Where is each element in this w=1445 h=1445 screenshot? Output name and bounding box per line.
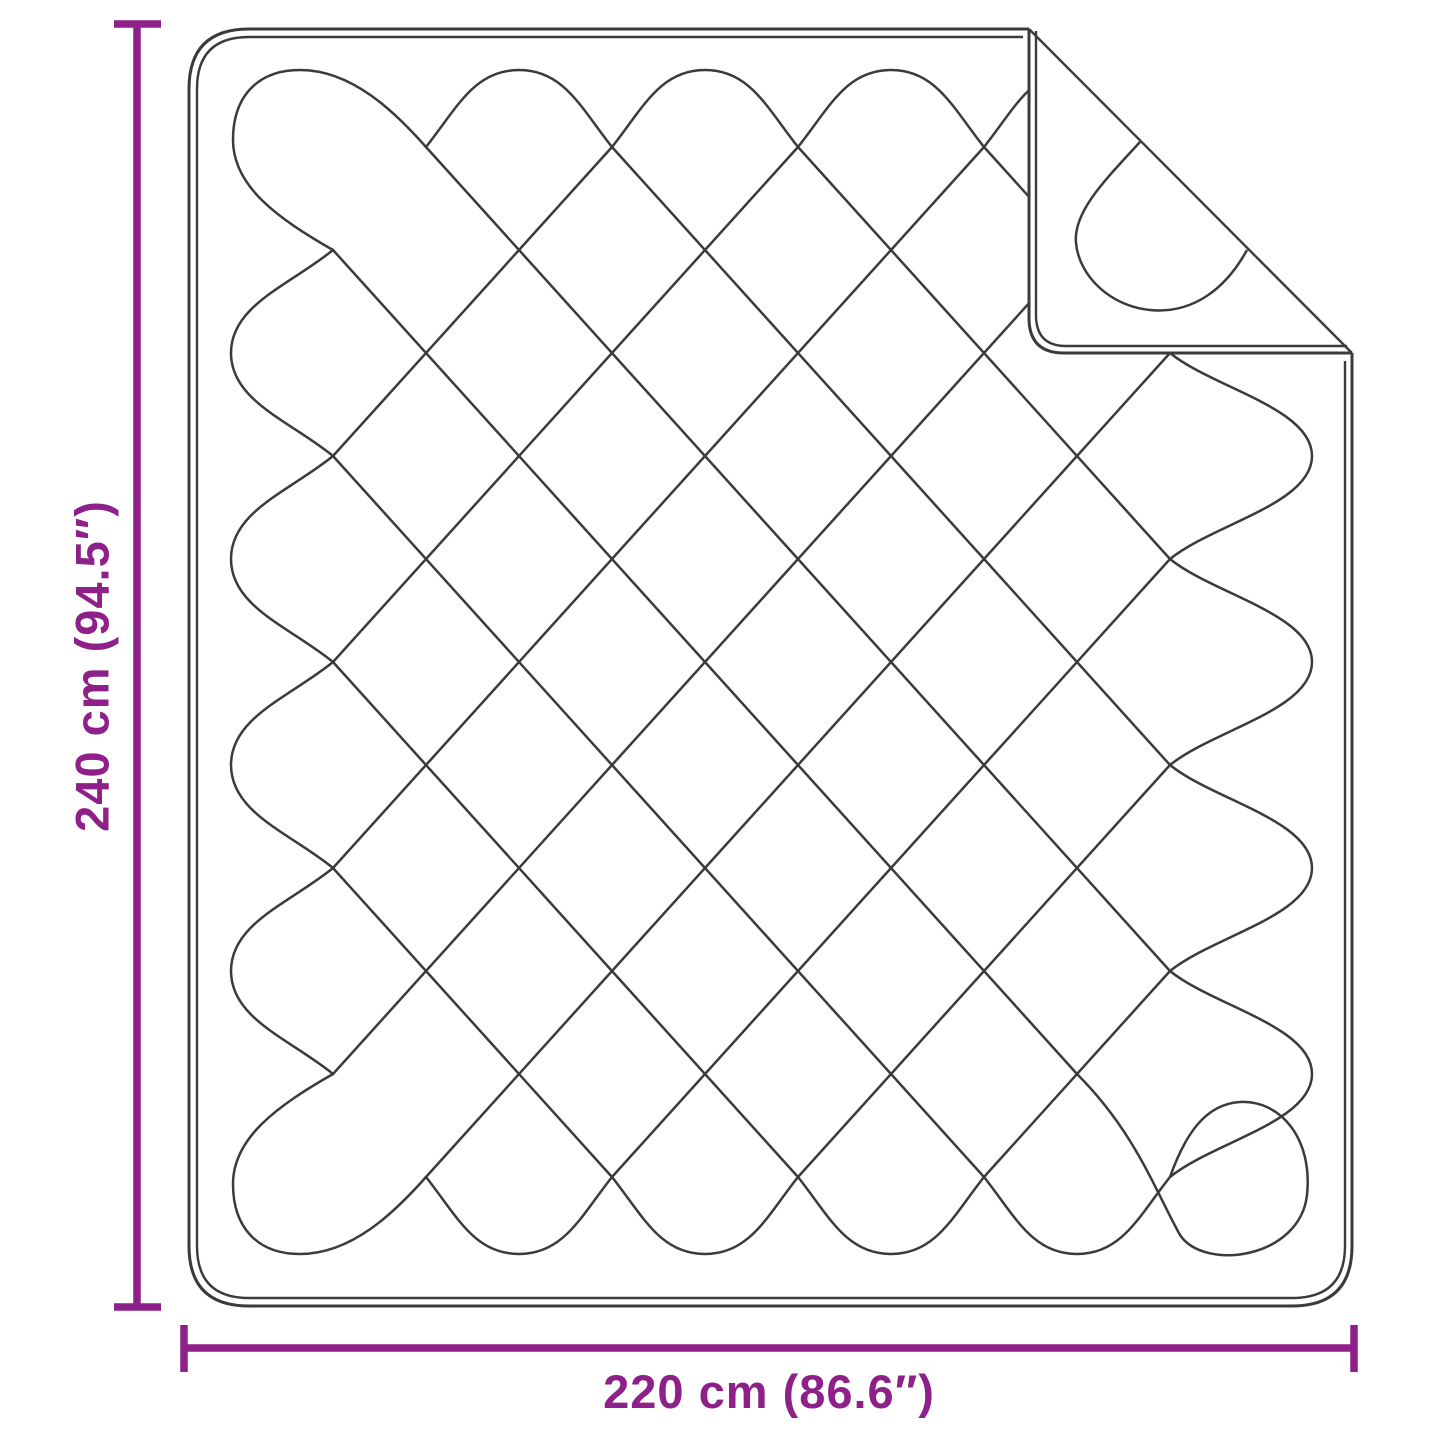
diagram-canvas: 240 cm (94.5″) 220 cm (86.6″) [0, 0, 1445, 1445]
quilt-stitch-line [798, 1177, 984, 1254]
quilt-stitch-line [1170, 353, 1312, 559]
quilt-stitch-line [1170, 559, 1312, 765]
quilt-stitch-line [333, 147, 612, 456]
quilt-stitch-line [333, 662, 798, 1177]
quilt-stitch-line [231, 456, 333, 662]
quilt-stitch-line [333, 147, 798, 662]
fold-flap [1029, 29, 1352, 353]
quilt-stitch-line [231, 662, 333, 868]
height-label: 240 cm (94.5″) [66, 500, 119, 832]
quilt-stitch-line [1170, 765, 1312, 971]
quilt-stitch-line [984, 1177, 1170, 1254]
quilt-stitch-line [798, 70, 984, 147]
height-dimension [114, 24, 161, 1307]
dimension-diagram: 240 cm (94.5″) 220 cm (86.6″) [0, 0, 1445, 1445]
quilt-stitch-line [1170, 971, 1312, 1177]
quilt-stitch-line [333, 147, 984, 868]
quilt-stitch-line [333, 868, 612, 1177]
quilt-stitch-line [231, 868, 333, 1074]
quilt-stitch-line [612, 70, 798, 147]
quilt-stitch-line [426, 1177, 612, 1254]
width-label: 220 cm (86.6″) [603, 1365, 935, 1418]
quilt-stitch-line [333, 456, 984, 1177]
quilt-stitch-line [233, 70, 426, 250]
quilt-stitch-line [231, 250, 333, 456]
quilt-stitch-line [612, 1177, 798, 1254]
quilt-stitch-line [1077, 1074, 1308, 1255]
quilt-stitch-line [426, 70, 612, 147]
quilt-stitch-line [233, 1074, 426, 1254]
